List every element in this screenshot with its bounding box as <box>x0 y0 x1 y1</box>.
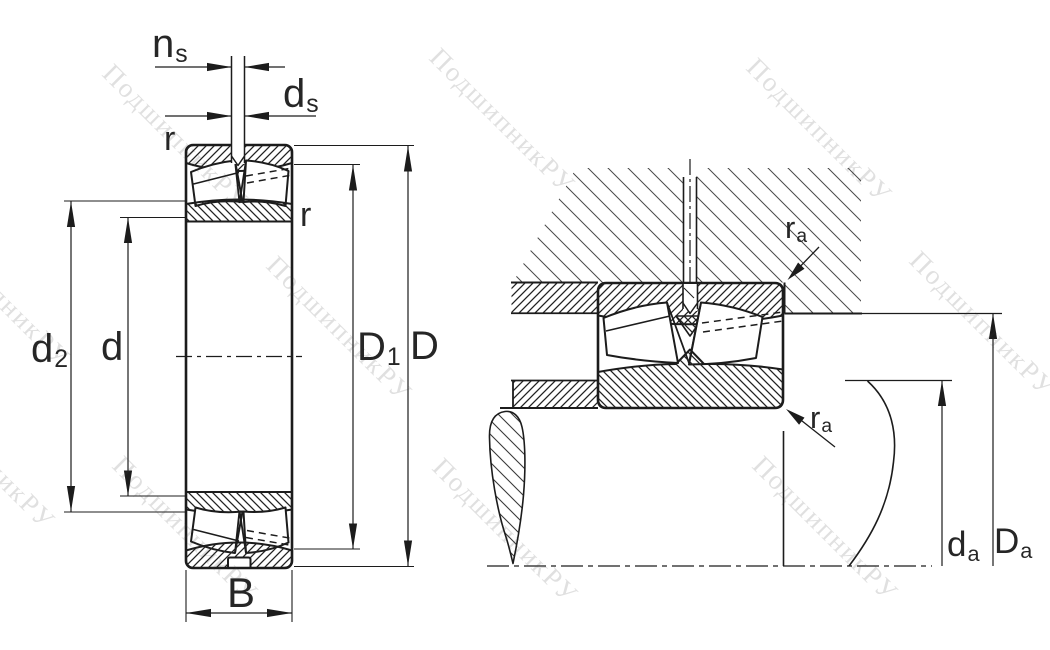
oil-hole-gap <box>232 143 245 164</box>
arrowhead <box>245 63 270 71</box>
label-r-outer: r <box>164 122 176 156</box>
arrowhead <box>67 202 75 228</box>
arrowhead <box>267 609 292 617</box>
drawing-canvas <box>0 0 1050 650</box>
right-view-mounting-section <box>487 159 1002 566</box>
arrowhead <box>124 218 132 244</box>
label-D1: D1 <box>357 327 401 367</box>
label-B: B <box>227 572 256 614</box>
arrowhead <box>404 146 412 172</box>
arrowhead <box>186 609 211 617</box>
label-d2: d2 <box>31 329 68 369</box>
arrowhead <box>124 471 132 497</box>
arrowhead <box>207 112 232 120</box>
label-da: da <box>947 527 980 562</box>
arrowhead <box>786 409 805 425</box>
label-D: D <box>410 326 440 366</box>
label-r-inner: r <box>300 198 312 232</box>
label-ns: ns <box>152 24 188 64</box>
label-d: d <box>101 327 124 367</box>
arrowhead <box>349 165 357 191</box>
arrowhead <box>67 486 75 512</box>
bearing-technical-drawing: ПодшипникРУ ПодшипникРУ ПодшипникРУ Подш… <box>0 0 1050 650</box>
label-ds: ds <box>283 74 319 114</box>
arrowhead <box>207 63 232 71</box>
arrowhead <box>938 381 946 407</box>
label-ra-shaft: ra <box>810 402 832 433</box>
shaft-spacer-section <box>513 381 598 409</box>
arrowhead <box>245 112 270 120</box>
locating-ring-section <box>512 284 599 313</box>
arrowhead <box>404 541 412 567</box>
label-Da: Da <box>994 524 1032 559</box>
arrowhead <box>349 524 357 550</box>
shaft-shoulder-curve <box>849 381 895 566</box>
inner-ring-section-top <box>186 200 292 222</box>
shaft-section-sliver <box>489 411 524 563</box>
label-ra-housing: ra <box>785 212 807 243</box>
arrowhead <box>989 314 997 340</box>
